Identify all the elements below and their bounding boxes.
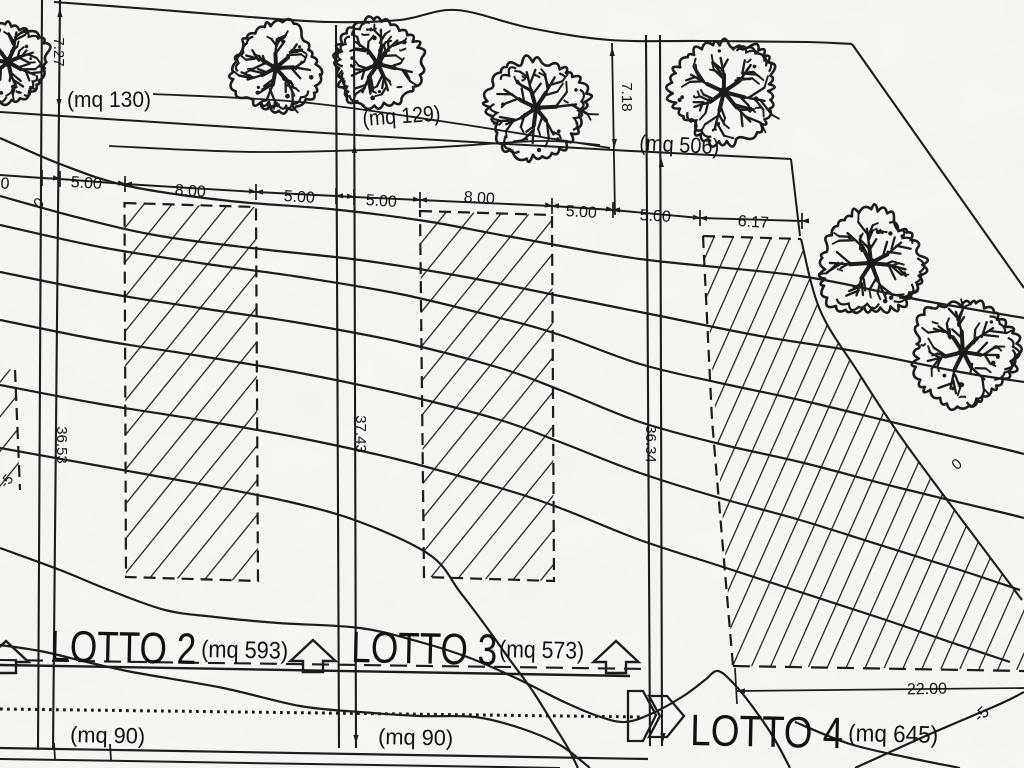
svg-text:LOTTO 3: LOTTO 3 — [351, 623, 498, 675]
svg-text:36.53: 36.53 — [53, 426, 70, 464]
svg-text:6.17: 6.17 — [737, 213, 769, 232]
svg-text:(mq 130): (mq 130) — [67, 87, 151, 112]
svg-text:(mq 593): (mq 593) — [201, 636, 289, 665]
svg-text:8.00: 8.00 — [174, 182, 206, 201]
svg-text:(mq 573): (mq 573) — [499, 636, 585, 665]
svg-text:(mq 90): (mq 90) — [378, 724, 454, 751]
svg-text:8.00: 8.00 — [463, 189, 495, 208]
svg-text:37.43: 37.43 — [352, 415, 369, 453]
svg-text:7.18: 7.18 — [618, 82, 635, 111]
svg-text:(mq 90): (mq 90) — [70, 722, 146, 749]
svg-text:7.27: 7.27 — [50, 37, 67, 66]
svg-text:(mq 506): (mq 506) — [639, 130, 720, 159]
svg-text:5.00: 5.00 — [565, 203, 597, 222]
svg-text:5.00: 5.00 — [70, 174, 102, 193]
svg-text:5.00: 5.00 — [365, 192, 397, 211]
svg-text:5.00: 5.00 — [283, 188, 315, 207]
svg-text:LOTTO 4: LOTTO 4 — [690, 706, 844, 758]
svg-text:5.00: 5.00 — [639, 207, 671, 226]
svg-text:LOTTO 2: LOTTO 2 — [50, 622, 197, 674]
svg-text:22.00: 22.00 — [907, 681, 947, 699]
svg-text:5.00: 5.00 — [0, 174, 10, 193]
svg-text:(mq 645): (mq 645) — [848, 720, 939, 749]
svg-text:36.34: 36.34 — [642, 425, 659, 463]
